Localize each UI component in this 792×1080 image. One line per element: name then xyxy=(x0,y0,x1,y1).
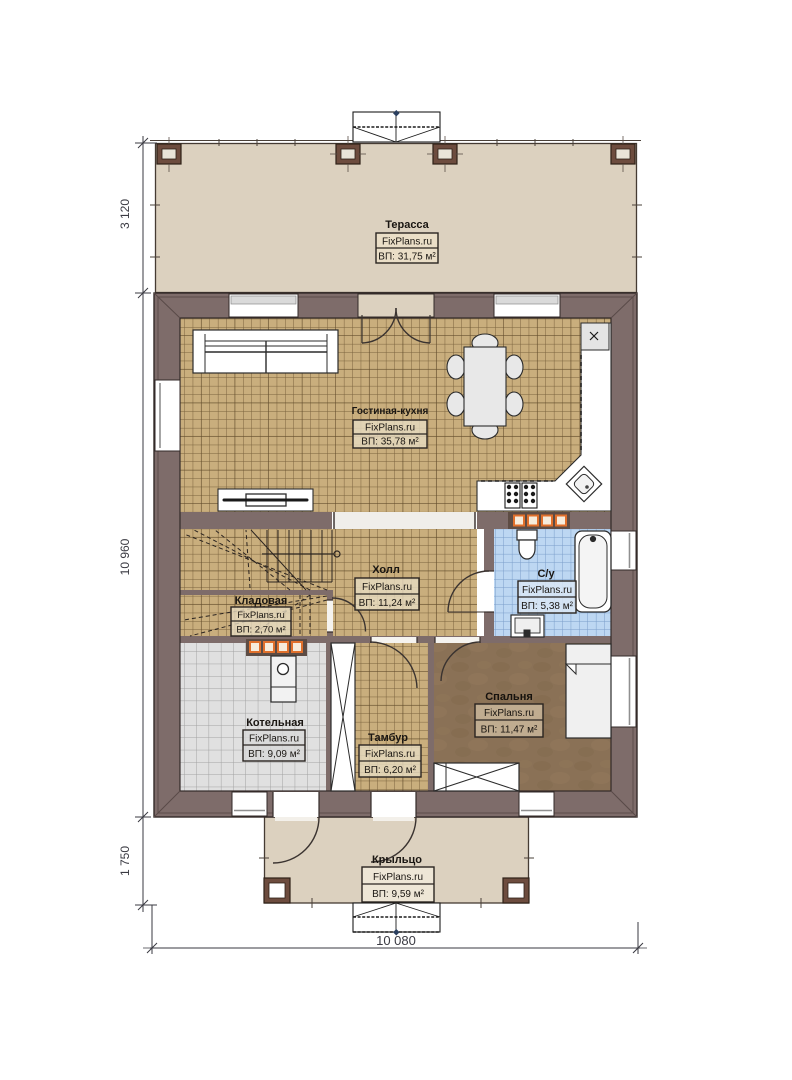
svg-text:FixPlans.ru: FixPlans.ru xyxy=(382,237,432,248)
svg-text:Гостиная-кухня: Гостиная-кухня xyxy=(352,406,429,417)
svg-text:10 080: 10 080 xyxy=(376,933,416,948)
svg-text:FixPlans.ru: FixPlans.ru xyxy=(237,610,285,621)
svg-text:ВП: 31,75 м²: ВП: 31,75 м² xyxy=(378,252,436,263)
svg-text:ВП: 5,38 м²: ВП: 5,38 м² xyxy=(521,601,574,612)
svg-text:3 120: 3 120 xyxy=(118,199,132,229)
svg-text:FixPlans.ru: FixPlans.ru xyxy=(484,708,534,719)
svg-text:ВП: 9,09 м²: ВП: 9,09 м² xyxy=(248,749,301,760)
svg-text:Спальня: Спальня xyxy=(485,691,533,703)
svg-text:ВП: 35,78 м²: ВП: 35,78 м² xyxy=(361,437,419,448)
svg-text:Тамбур: Тамбур xyxy=(368,732,408,744)
svg-text:FixPlans.ru: FixPlans.ru xyxy=(373,872,423,883)
svg-text:С/у: С/у xyxy=(537,568,555,580)
svg-text:ВП: 9,59 м²: ВП: 9,59 м² xyxy=(372,889,425,900)
svg-text:ВП: 11,47 м²: ВП: 11,47 м² xyxy=(481,725,538,736)
svg-text:Котельная: Котельная xyxy=(246,717,304,729)
svg-text:Терасса: Терасса xyxy=(385,219,429,231)
svg-text:1 750: 1 750 xyxy=(118,846,132,876)
svg-text:FixPlans.ru: FixPlans.ru xyxy=(522,585,572,596)
svg-text:10 960: 10 960 xyxy=(118,538,132,575)
svg-text:FixPlans.ru: FixPlans.ru xyxy=(249,734,299,745)
svg-text:ВП: 11,24 м²: ВП: 11,24 м² xyxy=(359,598,416,609)
svg-text:FixPlans.ru: FixPlans.ru xyxy=(362,582,412,593)
svg-text:FixPlans.ru: FixPlans.ru xyxy=(365,423,415,434)
svg-text:Крыльцо: Крыльцо xyxy=(372,854,422,866)
svg-text:Кладовая: Кладовая xyxy=(235,595,288,607)
svg-text:ВП: 2,70 м²: ВП: 2,70 м² xyxy=(236,625,285,636)
svg-text:ВП: 6,20 м²: ВП: 6,20 м² xyxy=(364,765,417,776)
svg-text:Холл: Холл xyxy=(372,564,400,576)
svg-text:FixPlans.ru: FixPlans.ru xyxy=(365,749,415,760)
